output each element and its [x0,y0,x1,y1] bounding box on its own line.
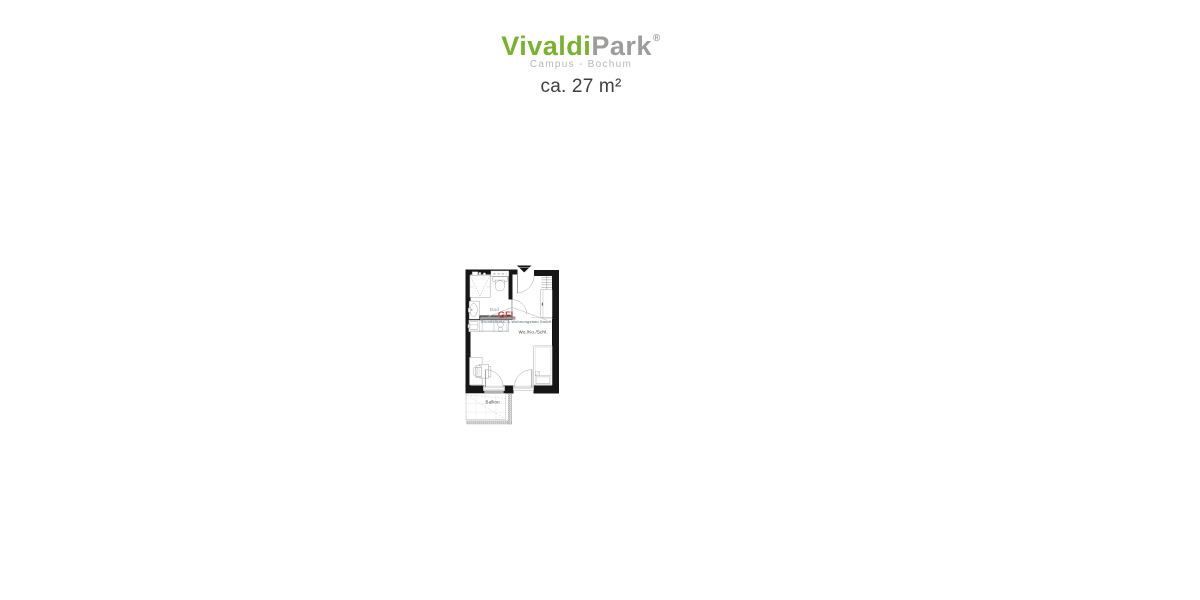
bathroom-door [512,300,527,315]
watermark-company-text: Grundstücks- & Wohnungsbau GmbH [481,320,552,324]
shower-head [483,273,486,276]
window-sill-right [513,386,534,390]
shower-fitting [472,272,478,275]
logo-text-green: Vivaldi [501,31,591,61]
shower [470,272,490,298]
toilet [493,277,508,291]
window-sill-left [483,386,504,393]
wall-bottom-left [465,385,484,393]
wall-bottom-right [533,385,559,393]
wardrobe [541,290,552,318]
radiator [541,275,552,289]
logo: VivaldiPark® [0,31,1162,62]
sink-faucet [468,324,470,327]
wall-right [552,270,559,393]
page-root: { "brand": { "part_green": "Vivaldi", "p… [0,0,1200,600]
bed [534,346,552,385]
wall-bath-right [509,275,513,300]
watermark-logo-text: GFI [498,310,514,321]
balcony-door-right [514,370,532,388]
logo-text-gray: Park [591,31,652,61]
label-balcony: Balkon [486,400,501,405]
chair [473,366,481,378]
floorplan: Bad Wo./Ko./Schl. Balkon GFI Grundstücks… [458,158,742,592]
wardrobe-handle [542,303,543,306]
balcony-railing-bottom [467,421,512,424]
area-label: ca. 27 m² [0,76,1162,98]
shelf-board [489,367,491,377]
entrance-marker-icon [517,266,532,273]
logo-subtitle: Campus - Bochum [0,59,1162,70]
label-living: Wo./Ko./Schl. [518,330,547,335]
entrance-door [517,275,534,293]
washbasin [468,301,479,319]
wall-bottom-pier [504,385,514,393]
faucet [468,308,470,312]
balcony-railing-right [508,393,511,424]
balcony [466,393,512,424]
mirror-shelf [491,271,509,276]
registered-mark: ® [653,33,661,44]
